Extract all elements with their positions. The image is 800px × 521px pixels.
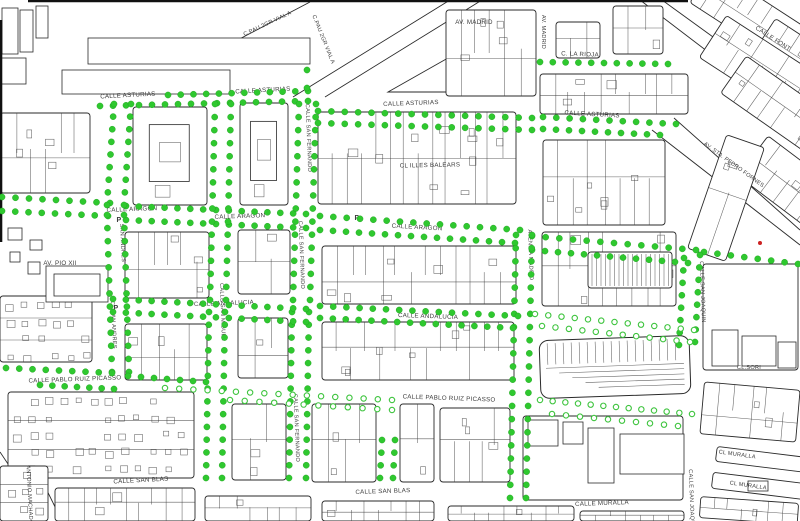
svg-text:P: P: [117, 217, 122, 224]
svg-text:CL.SORI: CL.SORI: [737, 365, 761, 371]
map-svg: CALLE ASTURIASCALLE ASTURIASCALLE ASTURI…: [0, 0, 800, 521]
svg-text:AV. PIO XII: AV. PIO XII: [43, 260, 76, 267]
svg-text:AV. MADRID: AV. MADRID: [540, 15, 546, 49]
svg-text:C. LA RIOJA: C. LA RIOJA: [561, 50, 600, 58]
svg-text:CL ILLES BALEARS: CL ILLES BALEARS: [400, 161, 461, 169]
city-map: CALLE ASTURIASCALLE ASTURIASCALLE ASTURI…: [0, 0, 800, 521]
svg-text:AV. MADRID: AV. MADRID: [455, 19, 493, 26]
